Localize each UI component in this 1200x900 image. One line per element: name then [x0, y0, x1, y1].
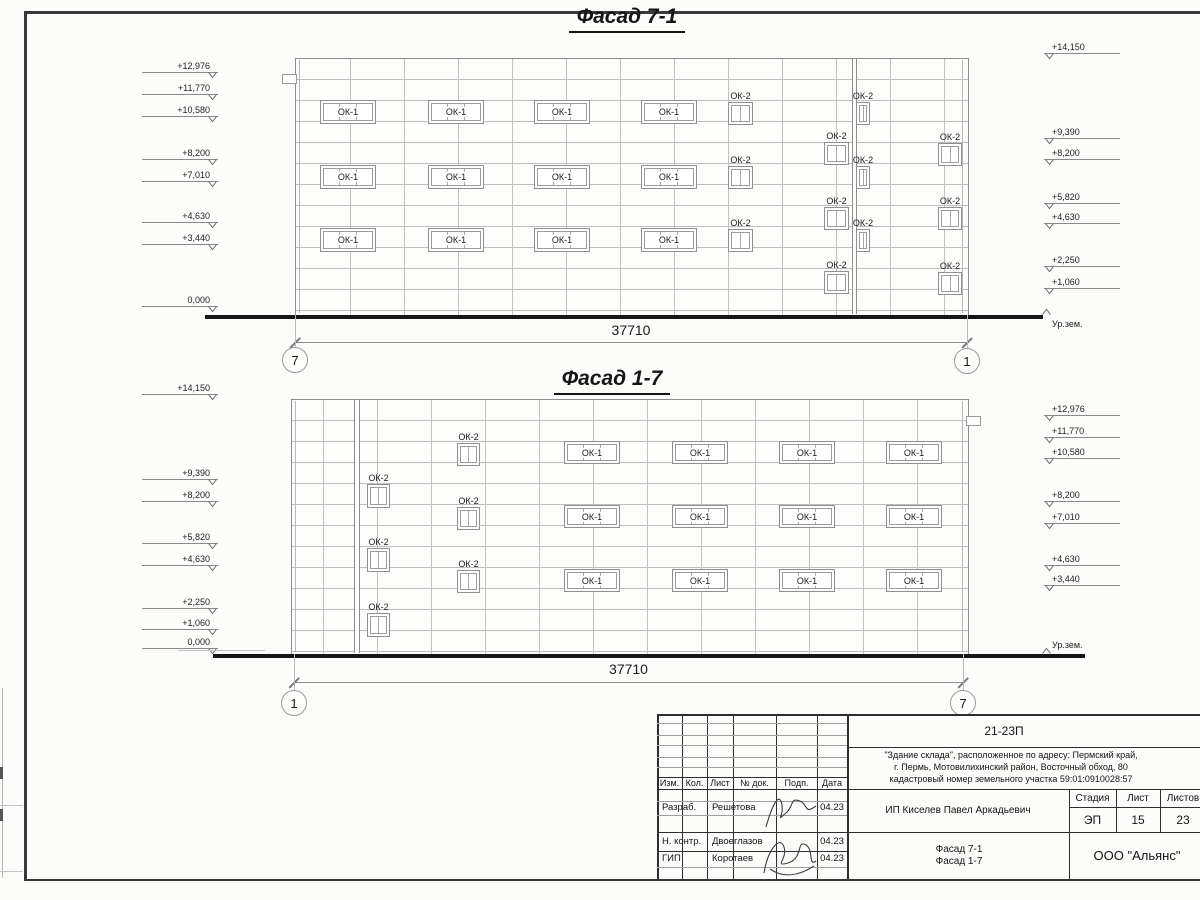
elevation-tick-icon — [208, 565, 217, 571]
elevation-mark-text: +4,630 — [1044, 212, 1120, 224]
elevation-mark-text: +10,580 — [142, 105, 218, 117]
window-label: ОК-1 — [444, 235, 468, 245]
elevation-mark-text: 0,000 — [142, 637, 218, 649]
elevation-tick-icon — [1045, 585, 1054, 591]
elevation-mark: +3,440 — [1044, 574, 1120, 586]
window-ok1: ОК-1 — [534, 228, 590, 252]
elevation-tick-icon — [208, 94, 217, 100]
elevation-mark-text: +11,770 — [142, 83, 218, 95]
ground-tick-icon — [1042, 309, 1051, 315]
window-label: ОК-1 — [795, 511, 819, 521]
elevation-mark: +8,200 — [142, 148, 218, 160]
window-pane — [371, 617, 378, 633]
stamp-col-ndok: № док. — [733, 777, 776, 789]
window-ok2: ОК-2 — [938, 143, 962, 166]
elevation-mark-text: +8,200 — [142, 148, 218, 160]
stamp-col-list: Лист — [707, 777, 733, 789]
elevation-tick-icon — [208, 159, 217, 165]
window-label: ОК-2 — [826, 260, 846, 270]
elevation-tick-icon — [1045, 415, 1054, 421]
window-frame — [731, 232, 750, 249]
elevation-tick-icon — [208, 306, 217, 312]
window-pane — [461, 574, 468, 589]
window-ok1: ОК-1 — [779, 505, 835, 528]
window-label: ОК-2 — [826, 196, 846, 206]
window-frame — [370, 487, 387, 505]
parapet-notch — [966, 416, 981, 426]
elevation-mark: +8,200 — [1044, 148, 1120, 160]
elevation-mark: +5,820 — [142, 532, 218, 544]
elevation-mark: +8,200 — [142, 490, 218, 502]
elevation-tick-icon — [1045, 501, 1054, 507]
elevation-tick-icon — [208, 244, 217, 250]
stamp-list-header: Лист — [1116, 790, 1160, 807]
window-label: ОК-2 — [458, 432, 478, 442]
elevation-mark-text: +7,010 — [142, 170, 218, 182]
elevation-tick-icon — [1045, 223, 1054, 229]
dimension-text: 37710 — [581, 322, 681, 338]
window-frame — [370, 551, 387, 569]
margin-divider-line — [2, 688, 3, 878]
window-label: ОК-1 — [444, 107, 468, 117]
window-label: ОК-1 — [550, 107, 574, 117]
elevation-mark: +9,390 — [1044, 127, 1120, 139]
window-ok2: ОК-2 — [728, 102, 753, 125]
margin-text-fragment — [0, 767, 3, 779]
elevation-mark: 0,000 — [142, 637, 218, 649]
elevation-tick-icon — [1045, 288, 1054, 294]
facade-edge-line — [295, 401, 296, 652]
axis-bubble: 7 — [950, 690, 976, 716]
window-ok1: ОК-1 — [672, 569, 728, 592]
window-ok1: ОК-1 — [428, 100, 484, 124]
window-ok1: ОК-1 — [886, 441, 942, 464]
elevation-mark: +7,010 — [1044, 512, 1120, 524]
stamp-address-line3: кадастровый номер земельного участка 59:… — [851, 773, 1171, 785]
window-label: ОК-1 — [688, 447, 712, 457]
elevation-mark-text: +4,630 — [142, 211, 218, 223]
elevation-mark-text: +2,250 — [142, 597, 218, 609]
stamp-company: ООО "Альянс" — [1070, 833, 1200, 879]
window-pane — [740, 106, 749, 121]
signature-gip-icon — [756, 831, 820, 879]
elevation-tick-icon — [208, 394, 217, 400]
window-label: ОК-1 — [795, 575, 819, 585]
elevation-tick-icon — [208, 222, 217, 228]
stamp-role-gip: ГИП — [660, 851, 707, 867]
dimension-text: 37710 — [579, 661, 679, 677]
elevation-mark: +4,630 — [1044, 554, 1120, 566]
window-ok1: ОК-1 — [564, 569, 620, 592]
window-pane — [863, 106, 867, 121]
stamp-subject: Фасад 7-1 Фасад 1-7 — [849, 833, 1069, 879]
window-pane — [468, 447, 476, 462]
elevation-mark: +8,200 — [1044, 490, 1120, 502]
facade-edge-line — [962, 60, 963, 313]
elevation-mark: +12,976 — [1044, 404, 1120, 416]
window-ok1: ОК-1 — [672, 505, 728, 528]
window-label: ОК-1 — [580, 511, 604, 521]
stamp-project-code: 21-23П — [849, 715, 1159, 746]
window-ok2: ОК-2 — [728, 166, 753, 189]
window-ok2: ОК-2 — [367, 613, 390, 637]
window-ok2: ОК-2 — [938, 272, 962, 295]
ground-line — [213, 654, 1085, 658]
elevation-mark-text: +7,010 — [1044, 512, 1120, 524]
stamp-hline-thin — [657, 745, 847, 746]
window-label: ОК-2 — [853, 155, 873, 165]
window-pane — [371, 552, 378, 568]
elevation-mark: +14,150 — [1044, 42, 1120, 54]
elevation-tick-icon — [208, 629, 217, 635]
drawing-sheet: Фасад 7-1ОК-1ОК-1ОК-1ОК-1ОК-1ОК-1ОК-1ОК-… — [0, 0, 1200, 900]
window-ok1: ОК-1 — [320, 228, 376, 252]
window-label: ОК-2 — [368, 602, 388, 612]
elevation-tick-icon — [1045, 203, 1054, 209]
window-ok1: ОК-1 — [564, 441, 620, 464]
elevation-tick-icon — [1045, 437, 1054, 443]
window-pane — [378, 552, 386, 568]
window-ok2: ОК-2 — [367, 548, 390, 572]
window-pane — [378, 617, 386, 633]
stamp-listov-value: 23 — [1160, 807, 1200, 832]
window-ok1: ОК-1 — [428, 165, 484, 189]
window-pane — [468, 574, 476, 589]
window-frame — [941, 275, 959, 292]
stamp-col-izm: Изм. — [657, 777, 682, 789]
window-pane — [828, 275, 836, 290]
window-pane — [461, 511, 468, 526]
ground-tick-icon — [1042, 648, 1051, 654]
window-frame — [370, 616, 387, 634]
window-ok1: ОК-1 — [641, 165, 697, 189]
elevation-mark: +2,250 — [142, 597, 218, 609]
elevation-mark: +5,820 — [1044, 192, 1120, 204]
window-ok2: ОК-2 — [938, 207, 962, 230]
elevation-mark: +4,630 — [142, 211, 218, 223]
elevation-mark: +4,630 — [142, 554, 218, 566]
axis-bubble: 7 — [282, 347, 308, 373]
window-pane — [863, 170, 867, 185]
window-ok1: ОК-1 — [672, 441, 728, 464]
facade-pilaster — [354, 400, 360, 653]
window-frame — [460, 446, 477, 463]
window-ok1: ОК-1 — [428, 228, 484, 252]
sheet-frame-left — [24, 11, 27, 881]
axis-leader-line — [963, 654, 964, 690]
window-ok2: ОК-2 — [457, 507, 480, 530]
window-pane — [950, 276, 959, 291]
ground-line — [205, 315, 1043, 319]
window-pane — [740, 170, 749, 185]
window-ok1: ОК-1 — [564, 505, 620, 528]
elevation-mark-text: +2,250 — [1044, 255, 1120, 267]
elevation-mark: +10,580 — [142, 105, 218, 117]
window-frame — [859, 105, 867, 122]
window-pane — [740, 233, 749, 248]
elevation-mark-text: +11,770 — [1044, 426, 1120, 438]
elevation-mark: +1,060 — [142, 618, 218, 630]
window-label: ОК-2 — [940, 261, 960, 271]
window-pane — [468, 511, 476, 526]
stamp-hline-thin — [657, 767, 847, 768]
window-ok2: ОК-2 — [728, 229, 753, 252]
window-frame — [731, 105, 750, 122]
elevation-mark: +4,630 — [1044, 212, 1120, 224]
axis-leader-line — [967, 315, 968, 348]
window-pane — [371, 488, 378, 504]
axis-bubble: 1 — [954, 348, 980, 374]
window-pane — [950, 147, 959, 162]
stamp-listov-header: Листов — [1160, 790, 1200, 807]
elevation-tick-icon — [1045, 266, 1054, 272]
elevation-mark: +3,440 — [142, 233, 218, 245]
ground-sub-line — [178, 650, 265, 651]
window-label: ОК-1 — [550, 172, 574, 182]
window-pane — [732, 233, 740, 248]
window-label: ОК-1 — [336, 172, 360, 182]
elevation-tick-icon — [208, 116, 217, 122]
window-frame — [827, 274, 846, 291]
stamp-list-value: 15 — [1116, 807, 1160, 832]
margin-row-line — [0, 871, 23, 872]
stamp-date-gip: 04.23 — [818, 851, 846, 867]
window-label: ОК-1 — [336, 107, 360, 117]
elevation-mark-text: +3,440 — [1044, 574, 1120, 586]
window-label: ОК-1 — [688, 575, 712, 585]
stamp-col-kol: Кол. — [682, 777, 707, 789]
window-frame — [941, 210, 959, 227]
elevation-mark-text: +3,440 — [142, 233, 218, 245]
facade-title: Фасад 1-7 — [452, 367, 772, 395]
stamp-stage-value: ЭП — [1069, 807, 1116, 832]
elevation-tick-icon — [208, 543, 217, 549]
elevation-mark-text: +8,200 — [1044, 490, 1120, 502]
window-frame — [827, 145, 846, 162]
window-ok2: ОК-2 — [457, 570, 480, 593]
stamp-col-podp: Подп. — [776, 777, 817, 789]
window-pane — [950, 211, 959, 226]
window-frame — [859, 169, 867, 186]
elevation-mark-text: +8,200 — [142, 490, 218, 502]
elevation-mark: +9,390 — [142, 468, 218, 480]
elevation-mark-text: +4,630 — [142, 554, 218, 566]
stamp-subject-line2: Фасад 1-7 — [936, 856, 983, 868]
window-label: ОК-2 — [826, 131, 846, 141]
elevation-tick-icon — [208, 479, 217, 485]
window-pane — [863, 233, 867, 248]
elevation-mark-text: +12,976 — [1044, 404, 1120, 416]
elevation-tick-icon — [1045, 159, 1054, 165]
elevation-mark-text: +8,200 — [1044, 148, 1120, 160]
elevation-mark: +11,770 — [1044, 426, 1120, 438]
window-label: ОК-1 — [580, 447, 604, 457]
elevation-mark-text: 0,000 — [142, 295, 218, 307]
window-pane — [461, 447, 468, 462]
window-label: ОК-2 — [853, 91, 873, 101]
parapet-notch — [282, 74, 297, 84]
window-ok2: ОК-2 — [856, 102, 870, 125]
margin-row-line — [0, 805, 23, 806]
elevation-mark: +12,976 — [142, 61, 218, 73]
ground-level-label: Ур.зем. — [1052, 319, 1083, 329]
stamp-role-nkontr: Н. контр. — [660, 833, 707, 851]
window-frame — [827, 210, 846, 227]
window-frame — [941, 146, 959, 163]
window-label: ОК-2 — [458, 559, 478, 569]
window-label: ОК-1 — [902, 511, 926, 521]
window-pane — [836, 211, 845, 226]
window-label: ОК-2 — [853, 218, 873, 228]
elevation-mark-text: +12,976 — [142, 61, 218, 73]
window-label: ОК-1 — [580, 575, 604, 585]
stamp-hline-thin — [657, 735, 847, 736]
window-pane — [942, 276, 950, 291]
stamp-hline — [847, 747, 1200, 748]
stamp-date-razrab: 04.23 — [818, 801, 846, 815]
window-label: ОК-1 — [444, 172, 468, 182]
window-pane — [828, 211, 836, 226]
window-ok1: ОК-1 — [534, 165, 590, 189]
window-ok2: ОК-2 — [824, 271, 849, 294]
window-frame — [731, 169, 750, 186]
window-label: ОК-1 — [902, 575, 926, 585]
elevation-mark: +2,250 — [1044, 255, 1120, 267]
window-label: ОК-1 — [550, 235, 574, 245]
window-label: ОК-1 — [657, 235, 681, 245]
elevation-mark: +7,010 — [142, 170, 218, 182]
window-pane — [732, 170, 740, 185]
elevation-mark-text: +4,630 — [1044, 554, 1120, 566]
window-pane — [836, 275, 845, 290]
elevation-mark: +14,150 — [142, 383, 218, 395]
stamp-address-line2: г. Пермь, Мотовилихинский район, Восточн… — [851, 761, 1171, 773]
window-ok2: ОК-2 — [457, 443, 480, 466]
axis-leader-line — [294, 654, 295, 690]
stamp-stage-header: Стадия — [1069, 790, 1116, 807]
window-pane — [942, 147, 950, 162]
stamp-role-razrab: Разраб. — [660, 801, 707, 815]
axis-leader-line — [295, 315, 296, 347]
window-label: ОК-2 — [368, 537, 388, 547]
elevation-mark-text: +1,060 — [1044, 277, 1120, 289]
stamp-address-line1: "Здание склада", расположенное по адресу… — [851, 749, 1171, 761]
window-ok1: ОК-1 — [779, 441, 835, 464]
window-pane — [942, 211, 950, 226]
elevation-tick-icon — [1045, 458, 1054, 464]
window-label: ОК-2 — [940, 196, 960, 206]
window-label: ОК-1 — [657, 107, 681, 117]
signature-razrab-icon — [760, 789, 822, 833]
stamp-client: ИП Киселев Павел Аркадьевич — [849, 790, 1067, 832]
elevation-tick-icon — [208, 72, 217, 78]
elevation-mark-text: +5,820 — [1044, 192, 1120, 204]
window-ok1: ОК-1 — [534, 100, 590, 124]
window-ok1: ОК-1 — [779, 569, 835, 592]
dimension-line — [294, 682, 963, 683]
elevation-mark-text: +10,580 — [1044, 447, 1120, 459]
window-ok2: ОК-2 — [824, 142, 849, 165]
elevation-mark-text: +5,820 — [142, 532, 218, 544]
elevation-mark-text: +1,060 — [142, 618, 218, 630]
window-label: ОК-2 — [730, 218, 750, 228]
margin-text-fragment — [0, 809, 3, 821]
elevation-tick-icon — [208, 181, 217, 187]
window-ok1: ОК-1 — [886, 569, 942, 592]
window-label: ОК-1 — [795, 447, 819, 457]
window-label: ОК-2 — [368, 473, 388, 483]
elevation-tick-icon — [1045, 565, 1054, 571]
elevation-tick-icon — [208, 501, 217, 507]
facade-edge-line — [299, 60, 300, 313]
window-label: ОК-1 — [688, 511, 712, 521]
window-label: ОК-1 — [336, 235, 360, 245]
elevation-tick-icon — [1045, 523, 1054, 529]
window-pane — [732, 106, 740, 121]
ground-level-label: Ур.зем. — [1052, 640, 1083, 650]
facade-title-text: Фасад 7-1 — [569, 5, 686, 33]
stamp-border-left — [657, 714, 659, 880]
stamp-vline — [707, 714, 708, 880]
elevation-tick-icon — [1045, 53, 1054, 59]
stamp-hline-thin — [657, 757, 847, 758]
window-label: ОК-2 — [730, 155, 750, 165]
stamp-hline-thin — [657, 723, 847, 724]
window-frame — [460, 573, 477, 590]
window-ok2: ОК-2 — [824, 207, 849, 230]
elevation-mark: +10,580 — [1044, 447, 1120, 459]
window-ok1: ОК-1 — [641, 228, 697, 252]
window-pane — [836, 146, 845, 161]
window-label: ОК-2 — [458, 496, 478, 506]
window-frame — [859, 232, 867, 249]
window-ok1: ОК-1 — [641, 100, 697, 124]
elevation-mark-text: +9,390 — [1044, 127, 1120, 139]
window-label: ОК-1 — [657, 172, 681, 182]
window-ok2: ОК-2 — [856, 229, 870, 252]
facade-body — [291, 399, 969, 656]
window-label: ОК-2 — [730, 91, 750, 101]
elevation-mark-text: +14,150 — [1044, 42, 1120, 54]
window-label: ОК-1 — [902, 447, 926, 457]
window-pane — [378, 488, 386, 504]
stamp-col-data: Дата — [817, 777, 847, 789]
facade-edge-line — [962, 401, 963, 652]
axis-bubble: 1 — [281, 690, 307, 716]
elevation-tick-icon — [208, 608, 217, 614]
facade-title: Фасад 7-1 — [467, 5, 787, 33]
elevation-tick-icon — [1045, 138, 1054, 144]
elevation-mark-text: +14,150 — [142, 383, 218, 395]
facade-title-text: Фасад 1-7 — [554, 367, 671, 395]
stamp-date-nkontr: 04.23 — [818, 833, 846, 851]
window-label: ОК-2 — [940, 132, 960, 142]
elevation-mark-text: +9,390 — [142, 468, 218, 480]
window-ok2: ОК-2 — [856, 166, 870, 189]
window-ok1: ОК-1 — [320, 100, 376, 124]
elevation-mark: 0,000 — [142, 295, 218, 307]
window-ok1: ОК-1 — [886, 505, 942, 528]
window-ok2: ОК-2 — [367, 484, 390, 508]
elevation-mark: +11,770 — [142, 83, 218, 95]
window-pane — [828, 146, 836, 161]
dimension-line — [295, 342, 967, 343]
elevation-mark: +1,060 — [1044, 277, 1120, 289]
stamp-subject-line1: Фасад 7-1 — [936, 844, 983, 856]
window-frame — [460, 510, 477, 527]
window-ok1: ОК-1 — [320, 165, 376, 189]
